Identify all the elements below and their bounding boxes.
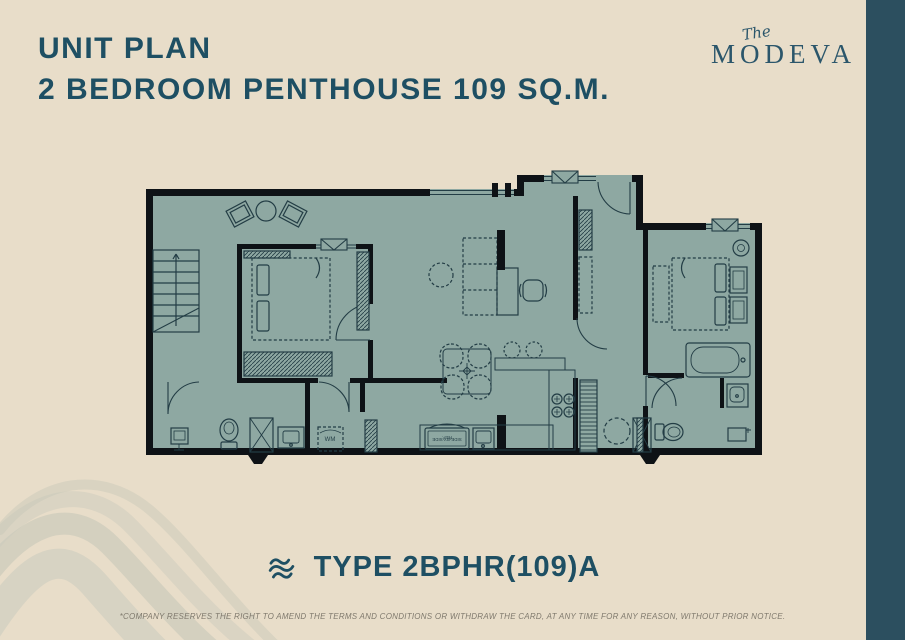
unit-type-label: TYPE 2BPHR(109)A <box>314 551 601 584</box>
window-symbol-mid <box>552 171 578 183</box>
disclaimer-text: *COMPANY RESERVES THE RIGHT TO AMEND THE… <box>0 612 905 621</box>
title-line-2: 2 BEDROOM PENTHOUSE 109 SQ.M. <box>38 69 610 110</box>
floor-plan: REF. SIDE-BY-SIDE WM <box>146 171 762 464</box>
page-title: UNIT PLAN 2 BEDROOM PENTHOUSE 109 SQ.M. <box>38 28 610 111</box>
wardrobe-2 <box>244 352 332 376</box>
wave-icon <box>266 553 302 583</box>
fridge-label-2: SIDE-BY-SIDE <box>432 437 462 442</box>
window-symbol-right <box>712 219 738 231</box>
balcony-door-tabs <box>248 455 660 464</box>
washer-label: WM <box>325 437 336 443</box>
title-line-1: UNIT PLAN <box>38 28 610 69</box>
unit-type-row: TYPE 2BPHR(109)A <box>0 551 866 584</box>
shaft-3 <box>365 420 377 452</box>
closet-2 <box>357 252 369 330</box>
tv-feature-wall <box>497 230 505 270</box>
brand-logo: The MODEVA <box>700 24 865 70</box>
